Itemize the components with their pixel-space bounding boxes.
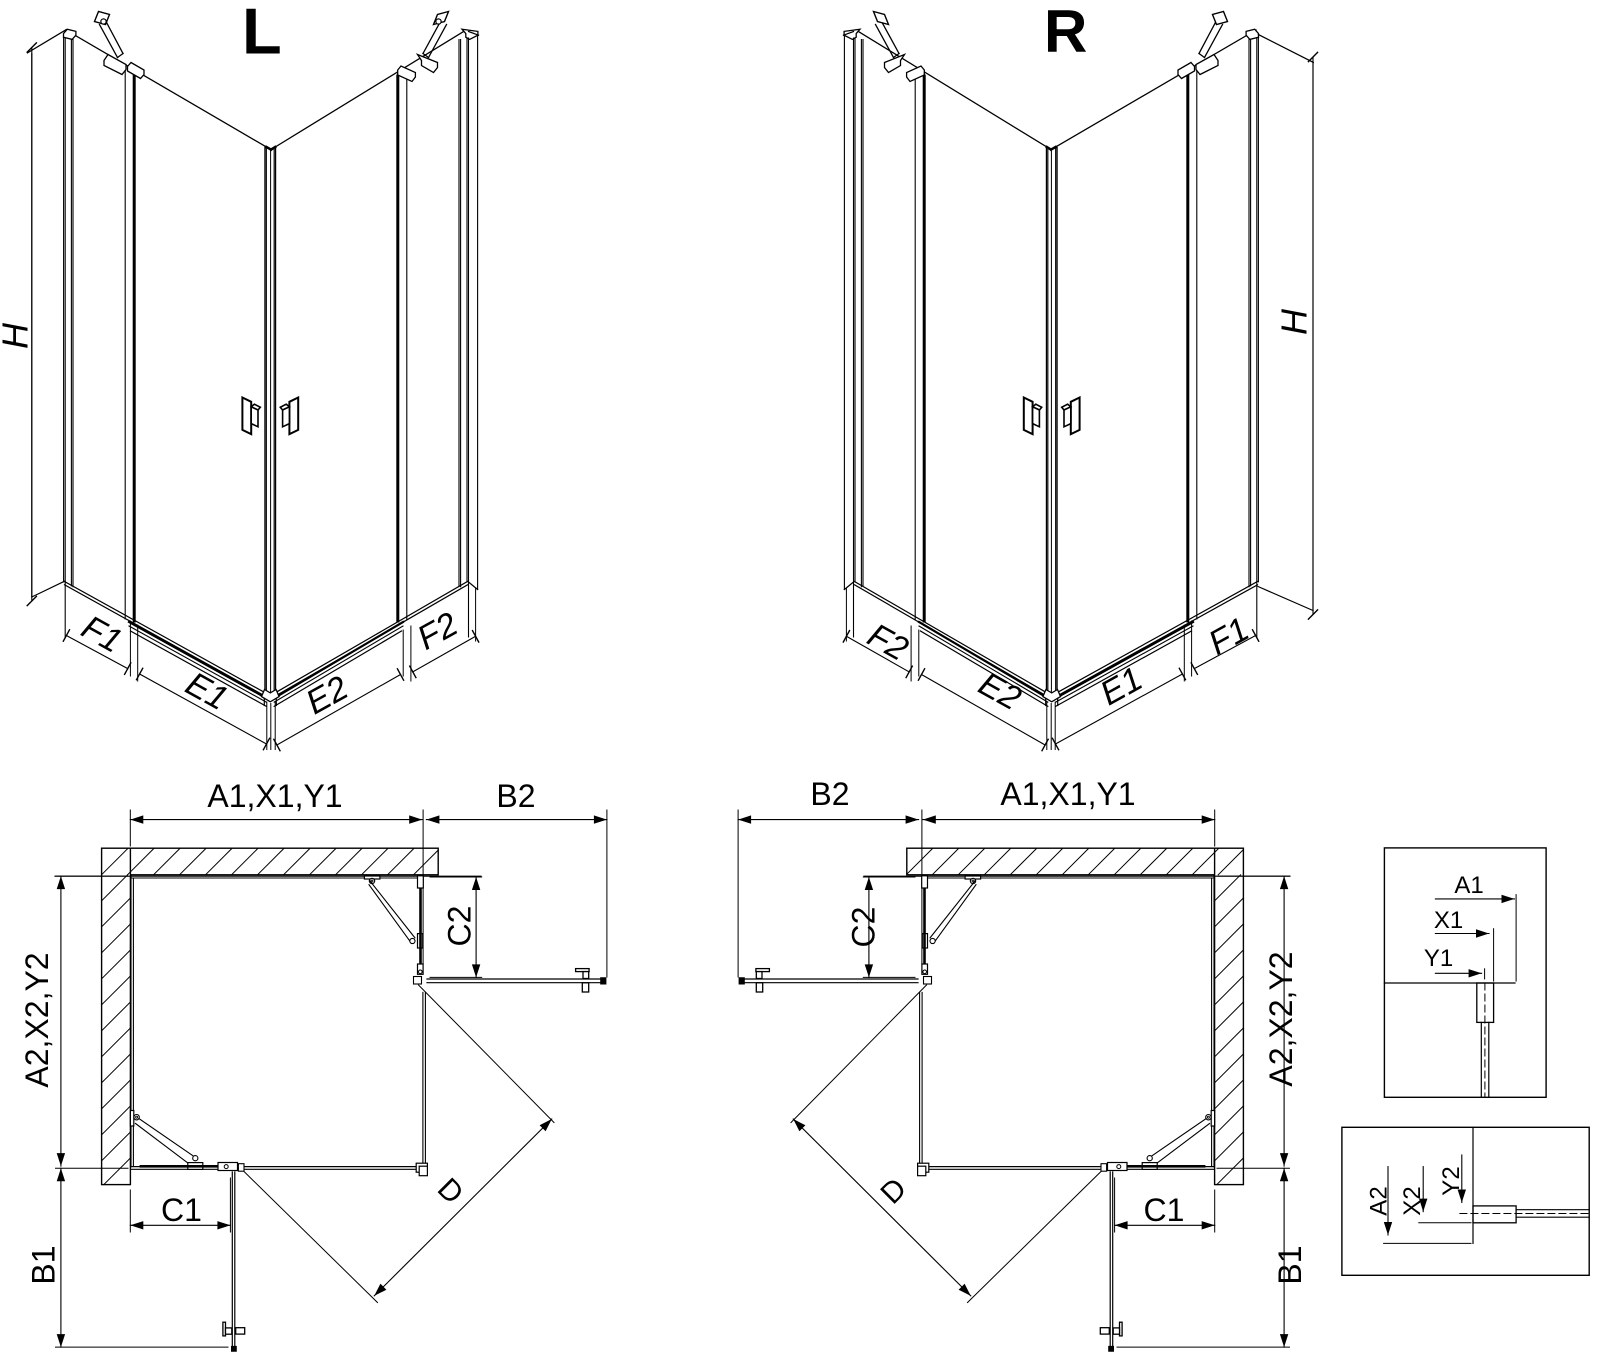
svg-text:E1: E1 [179,665,234,718]
svg-text:Y1: Y1 [1424,945,1453,972]
svg-text:R: R [1044,0,1087,65]
svg-text:A1,X1,Y1: A1,X1,Y1 [207,778,342,814]
svg-text:B1: B1 [1272,1245,1308,1284]
svg-text:A2,X2,Y2: A2,X2,Y2 [19,952,55,1087]
svg-text:H: H [0,322,36,349]
svg-text:X1: X1 [1434,907,1463,934]
svg-text:A2: A2 [1366,1186,1393,1215]
svg-text:A2,X2,Y2: A2,X2,Y2 [1263,951,1299,1086]
svg-text:B2: B2 [810,776,849,812]
svg-text:F1: F1 [1202,610,1255,662]
svg-text:X2: X2 [1399,1186,1426,1215]
svg-text:D: D [431,1172,470,1211]
svg-text:F2: F2 [861,616,914,669]
svg-text:B1: B1 [26,1245,62,1284]
svg-text:D: D [874,1172,913,1211]
svg-text:C1: C1 [161,1192,202,1228]
svg-text:B2: B2 [496,778,535,814]
svg-text:L: L [242,0,282,68]
svg-text:C2: C2 [846,907,882,948]
svg-text:A1,X1,Y1: A1,X1,Y1 [1000,776,1135,812]
svg-text:H: H [1274,308,1315,335]
svg-text:E2: E2 [972,665,1027,718]
svg-text:C2: C2 [442,906,478,947]
svg-text:Y2: Y2 [1438,1166,1465,1195]
svg-text:A1: A1 [1454,872,1483,899]
svg-text:C1: C1 [1144,1192,1185,1228]
